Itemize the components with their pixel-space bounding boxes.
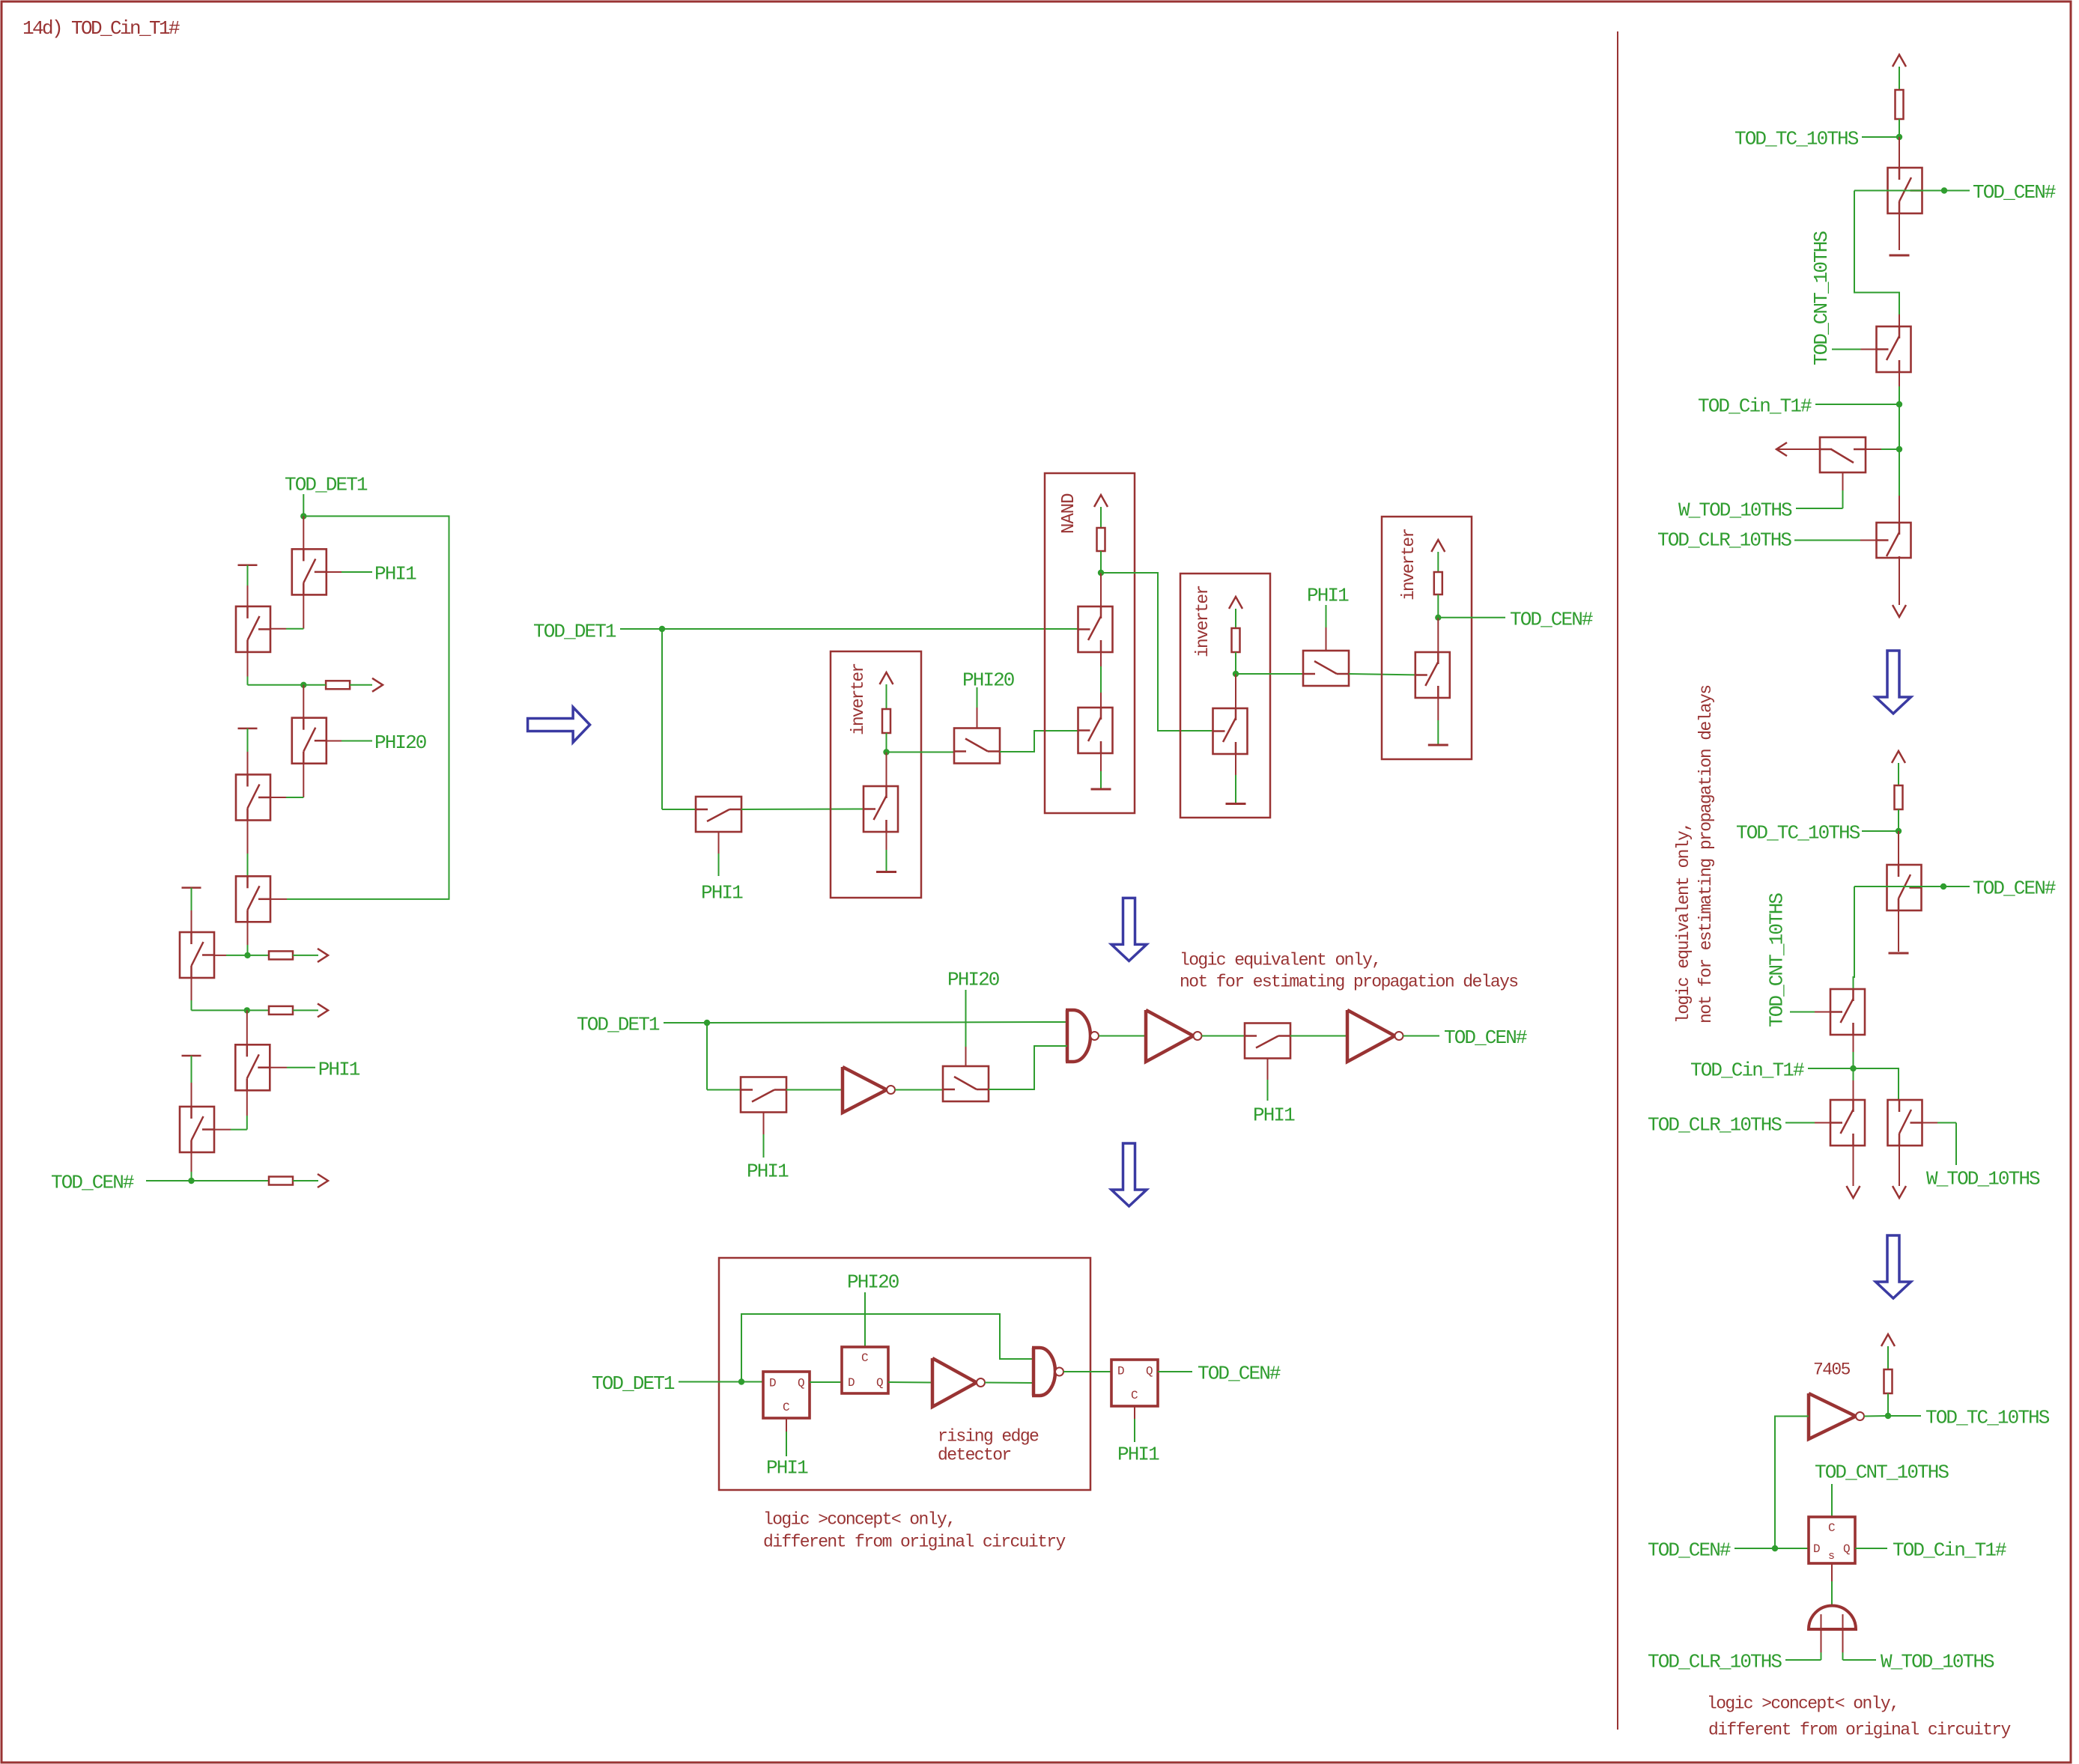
svg-text:D: D bbox=[848, 1376, 855, 1390]
svg-text:TOD_CEN#: TOD_CEN# bbox=[1648, 1539, 1731, 1562]
svg-text:PHI1: PHI1 bbox=[747, 1161, 789, 1183]
svg-text:Q: Q bbox=[1843, 1542, 1851, 1556]
svg-text:PHI1: PHI1 bbox=[1307, 585, 1349, 607]
svg-text:inverter: inverter bbox=[1399, 529, 1418, 600]
svg-text:PHI20: PHI20 bbox=[947, 969, 999, 991]
svg-text:TOD_CEN#: TOD_CEN# bbox=[1444, 1027, 1527, 1049]
svg-text:different from original circui: different from original circuitry bbox=[1708, 1721, 2011, 1740]
svg-text:not for estimating propagation: not for estimating propagation delays bbox=[1180, 973, 1517, 992]
svg-text:W_TOD_10THS: W_TOD_10THS bbox=[1881, 1651, 1994, 1673]
svg-text:TOD_CNT_10THS: TOD_CNT_10THS bbox=[1810, 231, 1833, 365]
svg-text:TOD_Cin_T1#: TOD_Cin_T1# bbox=[1893, 1539, 2006, 1562]
svg-text:PHI1: PHI1 bbox=[766, 1457, 808, 1479]
svg-text:inverter: inverter bbox=[1193, 586, 1213, 657]
svg-text:TOD_DET1: TOD_DET1 bbox=[533, 621, 616, 643]
svg-text:C: C bbox=[783, 1401, 790, 1414]
svg-text:TOD_DET1: TOD_DET1 bbox=[285, 474, 368, 496]
svg-text:TOD_DET1: TOD_DET1 bbox=[577, 1014, 660, 1036]
svg-text:PHI20: PHI20 bbox=[847, 1271, 899, 1294]
svg-text:TOD_DET1: TOD_DET1 bbox=[592, 1372, 675, 1395]
svg-text:PHI1: PHI1 bbox=[374, 563, 416, 586]
svg-text:NAND: NAND bbox=[1059, 493, 1079, 534]
svg-text:Q: Q bbox=[798, 1377, 805, 1390]
svg-text:TOD_CEN#: TOD_CEN# bbox=[1973, 181, 2056, 204]
svg-text:logic >concept< only,: logic >concept< only, bbox=[763, 1510, 955, 1530]
svg-text:TOD_TC_10THS: TOD_TC_10THS bbox=[1734, 128, 1859, 150]
svg-text:TOD_CEN#: TOD_CEN# bbox=[1973, 878, 2056, 900]
svg-text:different from original circui: different from original circuitry bbox=[763, 1533, 1066, 1552]
svg-text:logic equivalent only,: logic equivalent only, bbox=[1180, 951, 1380, 970]
svg-text:TOD_TC_10THS: TOD_TC_10THS bbox=[1925, 1407, 2050, 1429]
svg-text:inverter: inverter bbox=[849, 664, 868, 735]
svg-text:detector: detector bbox=[938, 1446, 1011, 1465]
svg-text:TOD_CNT_10THS: TOD_CNT_10THS bbox=[1815, 1462, 1949, 1484]
svg-text:D: D bbox=[769, 1377, 777, 1390]
svg-text:PHI20: PHI20 bbox=[962, 669, 1014, 692]
svg-text:7405: 7405 bbox=[1813, 1360, 1851, 1380]
svg-text:TOD_CEN#: TOD_CEN# bbox=[1510, 608, 1593, 630]
svg-text:logic >concept< only,: logic >concept< only, bbox=[1707, 1694, 1899, 1714]
svg-text:TOD_CLR_10THS: TOD_CLR_10THS bbox=[1648, 1651, 1782, 1673]
svg-text:PHI20: PHI20 bbox=[374, 732, 426, 754]
svg-text:TOD_CLR_10THS: TOD_CLR_10THS bbox=[1657, 529, 1791, 552]
svg-text:D: D bbox=[1117, 1365, 1125, 1378]
svg-text:PHI1: PHI1 bbox=[1253, 1104, 1295, 1127]
svg-text:s: s bbox=[1828, 1550, 1835, 1563]
svg-text:TOD_CEN#: TOD_CEN# bbox=[1198, 1363, 1281, 1385]
svg-text:logic equivalent only,: logic equivalent only, bbox=[1674, 823, 1693, 1024]
svg-text:C: C bbox=[861, 1351, 869, 1365]
svg-text:not for estimating propagation: not for estimating propagation delays bbox=[1696, 686, 1716, 1024]
svg-text:Q: Q bbox=[1146, 1365, 1153, 1378]
svg-text:PHI1: PHI1 bbox=[318, 1058, 360, 1080]
svg-text:TOD_CEN#: TOD_CEN# bbox=[51, 1172, 134, 1194]
svg-text:TOD_CNT_10THS: TOD_CNT_10THS bbox=[1766, 893, 1788, 1027]
svg-text:W_TOD_10THS: W_TOD_10THS bbox=[1926, 1168, 2040, 1190]
svg-text:rising edge: rising edge bbox=[938, 1427, 1039, 1447]
svg-text:PHI1: PHI1 bbox=[1117, 1444, 1159, 1466]
svg-text:TOD_TC_10THS: TOD_TC_10THS bbox=[1736, 822, 1860, 845]
svg-text:TOD_Cin_T1#: TOD_Cin_T1# bbox=[1698, 395, 1812, 418]
svg-text:W_TOD_10THS: W_TOD_10THS bbox=[1678, 499, 1792, 522]
svg-text:Q: Q bbox=[876, 1376, 884, 1390]
svg-text:D: D bbox=[1813, 1542, 1821, 1556]
svg-text:C: C bbox=[1131, 1389, 1138, 1402]
svg-text:C: C bbox=[1828, 1521, 1836, 1535]
svg-text:PHI1: PHI1 bbox=[701, 882, 743, 904]
svg-text:TOD_CLR_10THS: TOD_CLR_10THS bbox=[1648, 1114, 1782, 1137]
svg-text:TOD_Cin_T1#: TOD_Cin_T1# bbox=[1690, 1059, 1804, 1082]
svg-text:14d) TOD_Cin_T1#: 14d) TOD_Cin_T1# bbox=[22, 17, 180, 40]
